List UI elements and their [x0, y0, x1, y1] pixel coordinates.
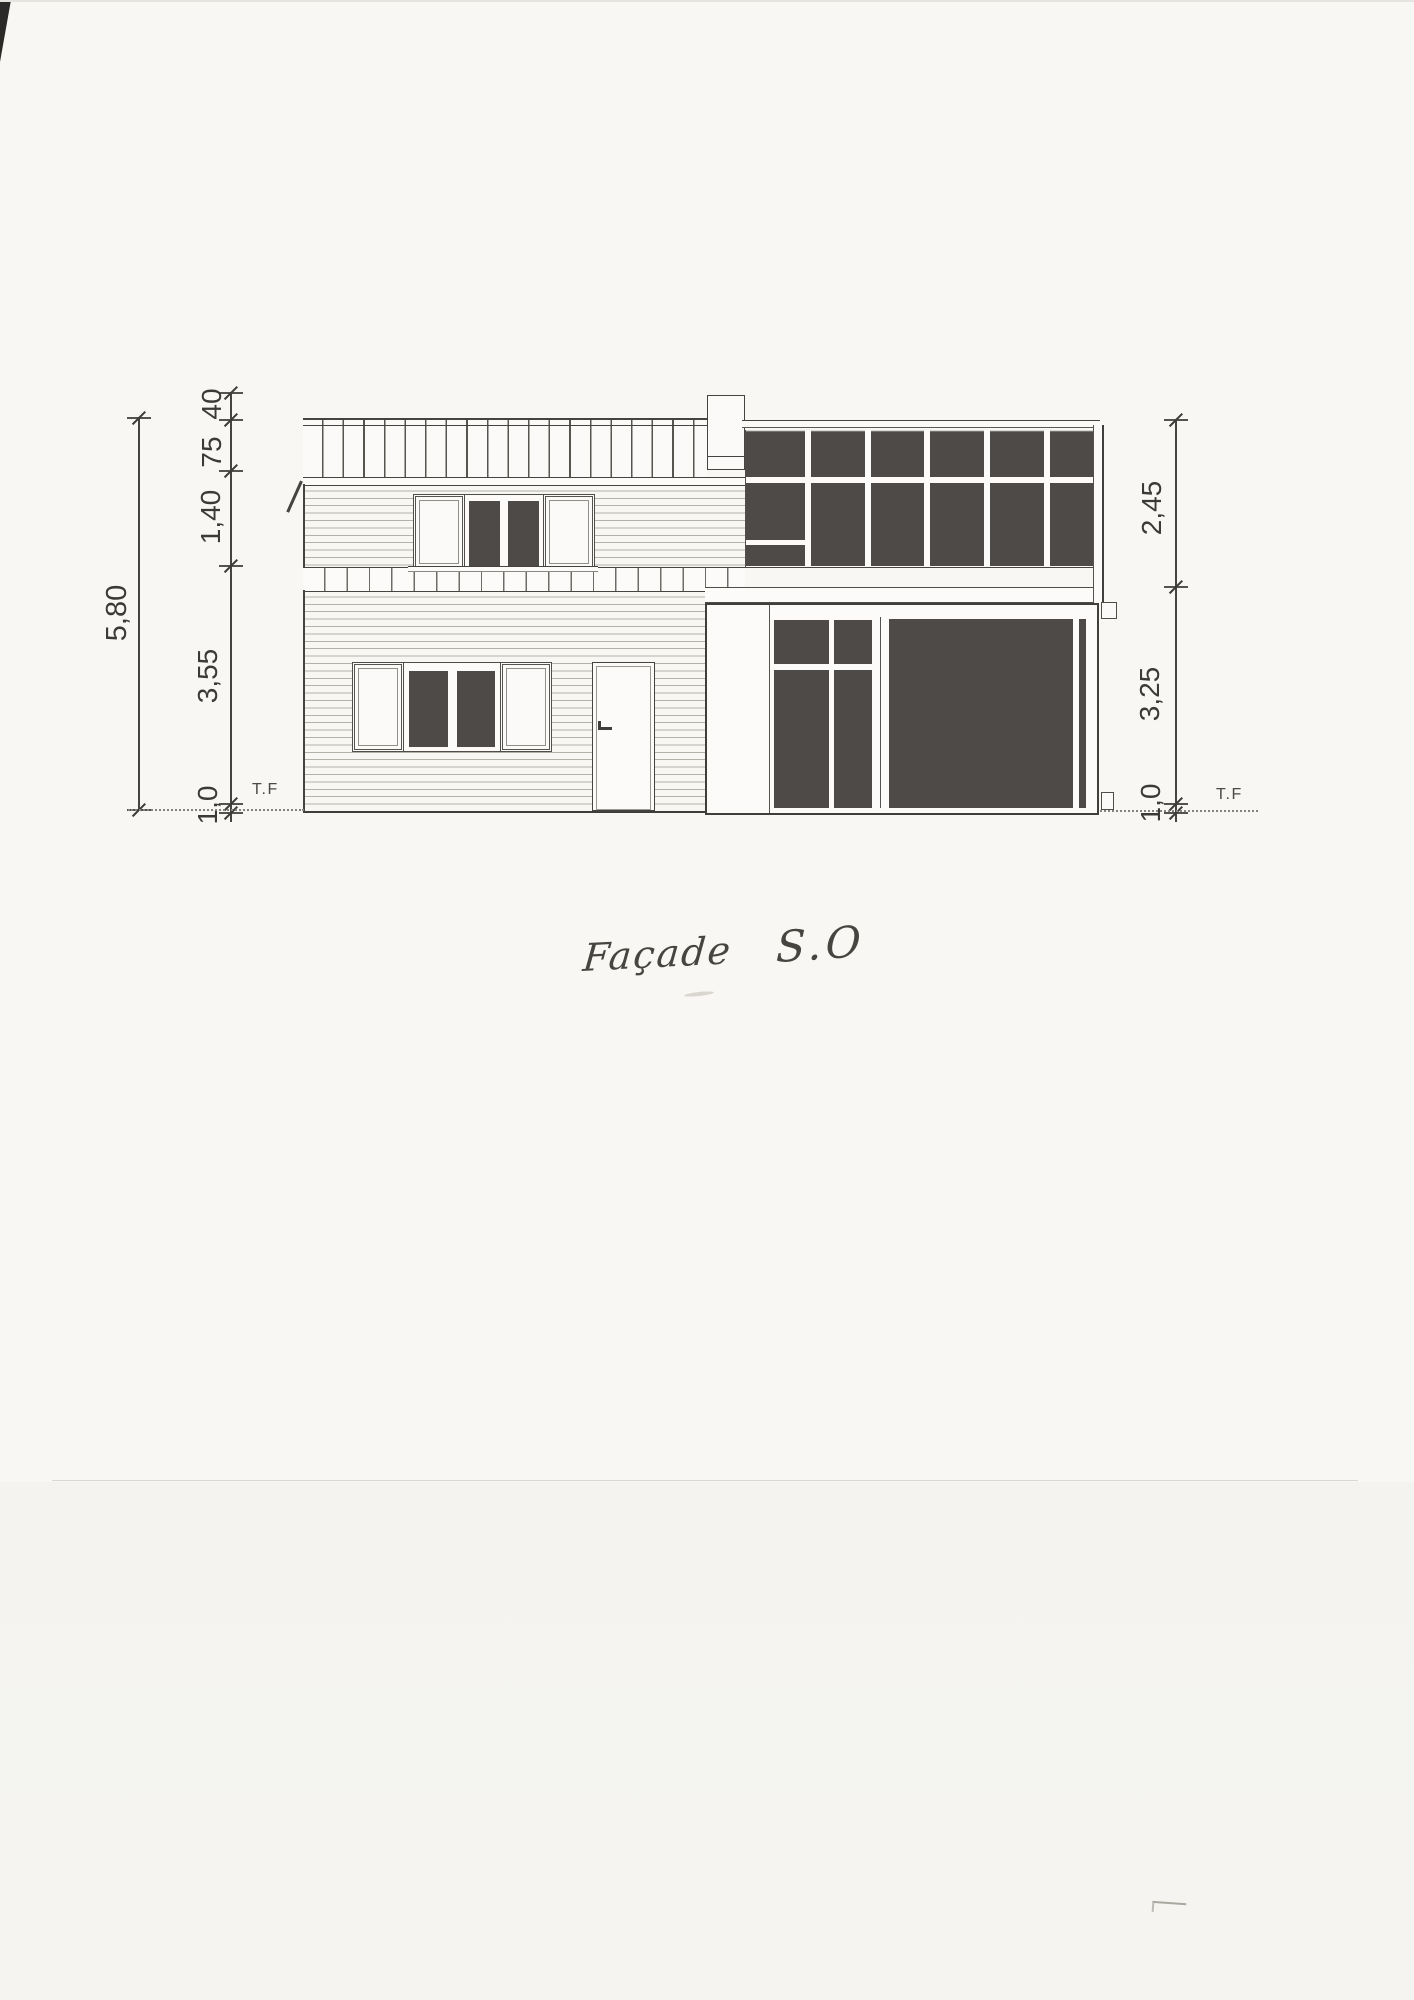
sliding-door-main-panel — [889, 619, 1073, 808]
ground-line-right — [1100, 810, 1258, 812]
glazing-panel — [871, 430, 925, 477]
drawing-title-orientation: S.O — [775, 917, 865, 973]
dim-label-40: 40 — [197, 387, 227, 421]
sliding-door-pane — [774, 620, 829, 664]
dim-line-right-chain — [1175, 420, 1177, 822]
flat-roof-line — [742, 420, 1100, 428]
door-handle-dot — [598, 721, 601, 728]
lower-window-frame — [403, 663, 501, 751]
glazing-panel — [990, 483, 1044, 566]
lower-window — [352, 662, 552, 752]
sliding-door-pane — [774, 670, 829, 808]
drawing-title-facade: Façade — [581, 928, 734, 980]
scan-top-edge — [0, 0, 1414, 2]
ground-level-label-right: T.F — [1216, 786, 1243, 804]
sliding-door-pane — [834, 620, 872, 664]
ground-level-label-left: T.F — [252, 781, 279, 799]
scan-corner-wedge — [0, 0, 11, 62]
sliding-glass-door — [705, 603, 1099, 815]
glazing-column-split — [746, 483, 805, 566]
upper-window-frame — [464, 495, 544, 569]
glazing-panel — [1050, 430, 1098, 477]
glazing-panel — [990, 430, 1044, 477]
glazing-panel — [930, 483, 984, 566]
chimney — [707, 395, 745, 470]
entry-door-leaf — [596, 666, 651, 810]
entry-door — [592, 662, 655, 811]
dim-line-left-chain — [230, 393, 232, 822]
dim-label-3-55: 3,55 — [193, 645, 223, 707]
lower-window-shutter-right — [502, 664, 550, 750]
lower-window-pane-right — [457, 671, 496, 747]
scan-mark-bottom-right — [1152, 1901, 1187, 1914]
glazing-panel — [746, 483, 805, 540]
dim-label-total-height: 5,80 — [102, 581, 132, 645]
frame-tab-upper — [1101, 602, 1117, 619]
sliding-door-mullion — [880, 617, 881, 808]
standing-seam-roof — [303, 418, 707, 479]
glazing-panel — [1050, 483, 1098, 566]
sliding-door-pier — [707, 605, 770, 813]
upper-window-sill — [408, 566, 598, 572]
glazing-panel — [871, 483, 925, 566]
scanned-sheet: 5,80 40 75 1,40 3,55 1,0 T.F 2,45 3,25 — [0, 0, 1414, 2000]
sheet-lower-shade — [0, 1482, 1414, 2000]
eave-bracket — [286, 480, 302, 512]
upper-window-pane-left — [469, 501, 500, 567]
dim-line-total-height — [138, 418, 140, 811]
dim-label-75: 75 — [197, 435, 227, 469]
upper-window-pane-right — [508, 501, 539, 567]
lower-window-shutter-left — [354, 664, 402, 750]
lower-window-pane-left — [409, 671, 448, 747]
curtain-wall-transom-row — [746, 430, 1098, 477]
storey-band-right — [705, 587, 1100, 603]
dim-label-1-0-right: 1,0 — [1136, 781, 1166, 825]
sliding-door-pane — [834, 670, 872, 808]
dim-label-1-40: 1,40 — [196, 486, 226, 548]
dim-label-2-45: 2,45 — [1137, 477, 1167, 539]
dim-label-3-25: 3,25 — [1135, 663, 1165, 725]
upper-window — [413, 494, 595, 570]
upper-window-shutter-left — [415, 496, 463, 568]
pencil-smudge — [684, 990, 714, 997]
curtain-wall-upper — [745, 430, 1099, 568]
upper-window-shutter-right — [545, 496, 593, 568]
glazing-panel-small — [746, 545, 805, 566]
right-wall-edge — [1093, 425, 1104, 603]
glazing-panel — [811, 430, 865, 477]
glazing-panel — [746, 430, 805, 477]
curtain-wall-main-row — [746, 483, 1098, 566]
frame-tab-lower — [1101, 792, 1114, 810]
dim-label-1-0-left: 1,0 — [193, 783, 223, 827]
ground-line-left — [128, 809, 304, 811]
sliding-door-edge-pane — [1079, 619, 1086, 808]
glazing-panel — [930, 430, 984, 477]
glazing-panel — [811, 483, 865, 566]
